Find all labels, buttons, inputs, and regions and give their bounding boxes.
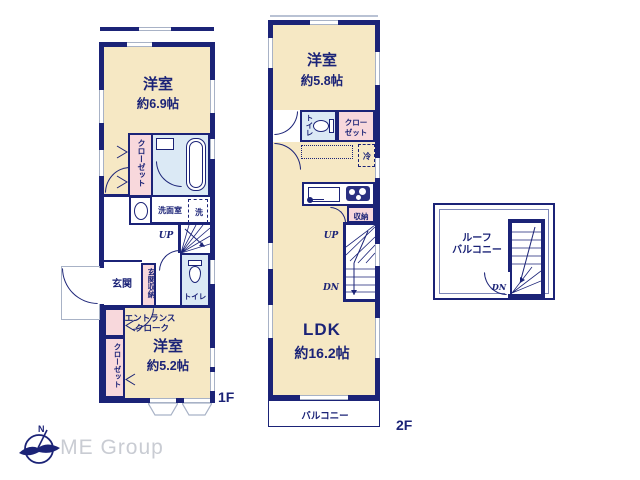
floor2-bedroom-name: 洋室	[307, 49, 337, 70]
bifold-door-icon	[116, 145, 128, 159]
bath-door-arc	[156, 161, 182, 187]
roof-stairs	[508, 219, 545, 298]
floorplan-canvas: クローゼット 洗面室 洗	[0, 0, 640, 480]
floor1-stairs	[178, 225, 210, 253]
floor2-dn-label: DN	[323, 283, 339, 293]
floor1-tag: 1F	[218, 389, 234, 405]
floor2-stairs	[343, 222, 375, 302]
toilet-icon	[188, 260, 202, 284]
floor2-storage: 収納	[347, 206, 375, 223]
floor1-entrance-storage: 玄関収納	[141, 263, 156, 308]
window	[210, 80, 215, 113]
bath-counter-icon	[156, 138, 174, 150]
floor2-balcony: バルコニー	[268, 400, 380, 427]
window	[210, 260, 215, 284]
wall	[104, 194, 130, 197]
window	[127, 42, 152, 47]
floor2-storage-label: 収納	[354, 211, 369, 222]
fridge-label: 冷	[363, 151, 371, 162]
window	[375, 52, 380, 85]
floor1-bedroom-top-name: 洋室	[143, 73, 173, 94]
wall	[104, 260, 142, 262]
floor1-toilet-label: トイレ	[184, 291, 207, 302]
floor2-eave-line	[270, 15, 378, 17]
kitchen-sink-icon	[308, 187, 340, 202]
floor2-ldk-name: LDK	[303, 320, 341, 340]
me-group-compass-icon: N	[16, 422, 64, 470]
window	[210, 139, 215, 159]
floor1-closet-top-label: クローゼット	[136, 139, 147, 187]
floor2-toilet: トイレ	[300, 110, 337, 142]
floor2-hall-door-arc	[274, 111, 298, 135]
bifold-door-icon	[125, 373, 136, 386]
window	[210, 348, 215, 367]
floor1-closet-bottom: クローゼット	[104, 337, 125, 398]
window	[375, 318, 380, 358]
floor1-entrance-label: 玄関	[112, 275, 132, 290]
floor1-entrance-storage-label: 玄関収納	[146, 268, 157, 298]
floor1-eave-window	[139, 27, 171, 31]
kitchen-counter	[302, 182, 375, 206]
window	[99, 90, 104, 123]
washer-label: 洗	[195, 207, 203, 218]
roof-balcony-label-2: バルコニー	[452, 241, 502, 256]
floor1-plan: クローゼット 洗面室 洗	[99, 42, 215, 403]
washer-space: 洗	[188, 199, 208, 223]
floor1-bedroom-bottom-size: 約5.2帖	[147, 355, 189, 374]
floor2-tag: 2F	[396, 417, 412, 433]
compass-n: N	[38, 424, 45, 434]
window	[268, 243, 273, 269]
window-shutter-icon	[182, 403, 212, 416]
toilet-door-arc	[159, 250, 180, 271]
window	[268, 38, 273, 68]
window	[375, 158, 380, 178]
bifold-door-icon	[125, 319, 136, 332]
window	[375, 244, 380, 266]
me-group-logo-text: ME Group	[60, 436, 164, 460]
roof-dn-label: DN	[492, 282, 506, 292]
floor1-toilet: トイレ	[180, 253, 210, 308]
bathtub-icon	[186, 138, 206, 191]
floor1-washroom-label: 洗面室	[158, 205, 182, 216]
floor1-vanity-icon	[129, 196, 152, 225]
window	[310, 20, 338, 25]
floor1-entrance-cloak-box	[104, 308, 125, 337]
floor2-ldk-size: 約16.2帖	[294, 343, 349, 363]
window	[210, 372, 215, 391]
entrance-door-opening	[99, 268, 104, 304]
fridge-space: 冷	[358, 144, 375, 167]
counter-outline	[301, 145, 353, 159]
toilet-icon	[313, 118, 335, 134]
stove-icon	[346, 186, 370, 201]
floor2-up-label: UP	[324, 231, 339, 241]
floor2-closet-label-2: ゼット	[345, 127, 368, 138]
window	[268, 305, 273, 338]
floor2-balcony-label: バルコニー	[301, 408, 348, 422]
floor2-closet: クロー ゼット	[337, 110, 375, 142]
window	[99, 150, 104, 176]
floor2-bedroom-size: 約5.8帖	[301, 70, 343, 89]
floor1-closet-bottom-label: クローゼット	[112, 343, 123, 388]
floor2-plan: 洋室 約5.8帖 トイレ クロー ゼット 冷	[268, 20, 380, 400]
window-shutter-icon	[148, 403, 178, 416]
floor1-up-label: UP	[159, 231, 174, 241]
floor1-bedroom-top-size: 約6.9帖	[137, 93, 179, 112]
floor1-bedroom-bottom-name: 洋室	[153, 335, 183, 356]
floor1-bathroom	[151, 133, 210, 197]
